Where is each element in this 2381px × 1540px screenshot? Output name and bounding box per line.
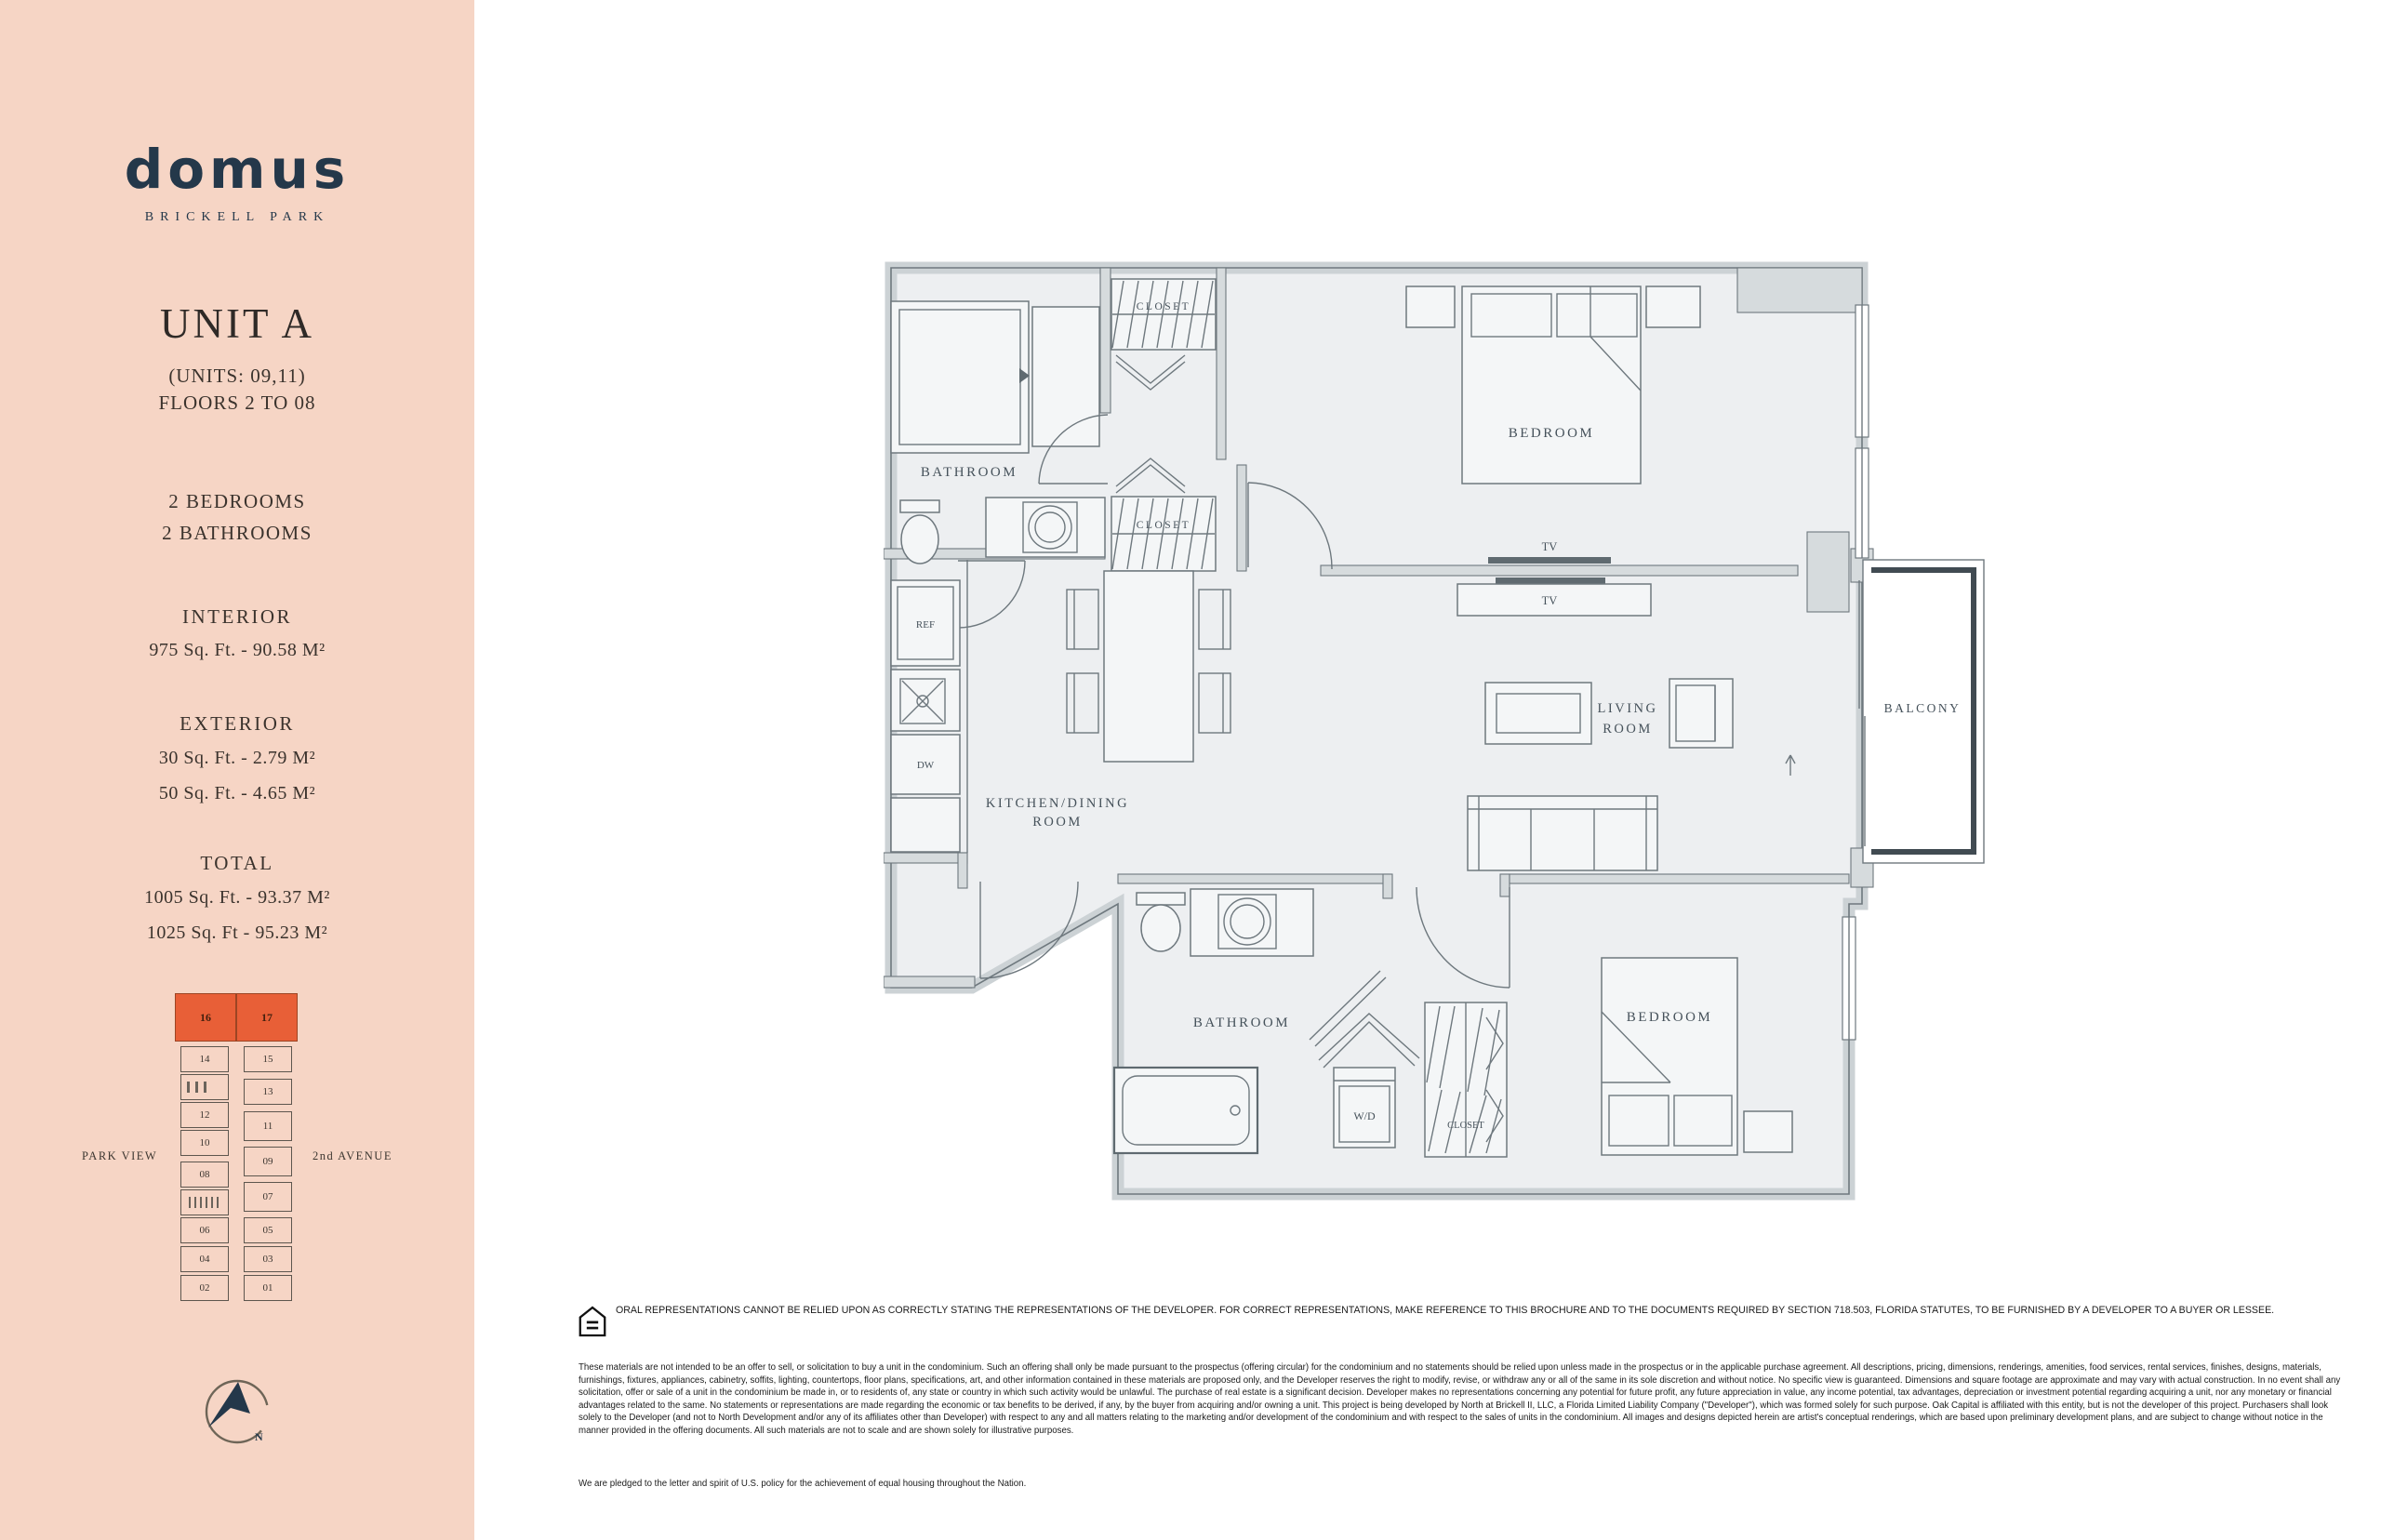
keyplan-unit-13: 13 — [244, 1079, 292, 1105]
keyplan-unit-11: 11 — [244, 1111, 292, 1141]
keyplan-unit-07: 07 — [244, 1182, 292, 1212]
wd-label: W/D — [1353, 1109, 1376, 1122]
armchair — [1669, 679, 1733, 748]
keyplan-unit-04: 04 — [180, 1246, 229, 1272]
total-area-1: 1005 Sq. Ft. - 93.37 M² — [0, 887, 474, 909]
bathroom-top-label: BATHROOM — [921, 465, 1018, 480]
nightstand-1 — [1406, 286, 1455, 327]
unit-title: UNIT A — [0, 299, 474, 348]
kitchen-sink — [891, 670, 960, 731]
keyplan-unit-16-highlighted: 16 — [175, 993, 236, 1042]
tv-bottom-unit — [1496, 577, 1605, 584]
shower — [891, 301, 1030, 453]
closet-bottom-label: CLOSET — [1447, 1121, 1484, 1131]
bedroom-top-label: BEDROOM — [1509, 426, 1595, 441]
keyplan-unit-09: 09 — [244, 1147, 292, 1176]
bathroom-1-sink — [986, 498, 1105, 557]
unit-numbers: (UNITS: 09,11) — [0, 365, 474, 388]
toilet-1 — [900, 500, 939, 564]
stairs-icon — [180, 1189, 229, 1215]
linen-cabinet — [1032, 307, 1099, 446]
disclaimer-headline-block: ORAL REPRESENTATIONS CANNOT BE RELIED UP… — [579, 1304, 2338, 1343]
keyplan-unit-17-highlighted: 17 — [236, 993, 298, 1042]
bed-1 — [1462, 286, 1641, 484]
kitchen-counter — [891, 560, 967, 853]
closet-bottom-unit — [1425, 1002, 1507, 1157]
closet-top-label: CLOSET — [1137, 301, 1190, 312]
sidebar: domus BRICKELL PARK UNIT A (UNITS: 09,11… — [0, 0, 474, 1540]
floorplan: CLOSET CLOSET BATHROOM BEDROOM TV TV REF… — [884, 253, 2065, 1239]
bathrooms-count: 2 BATHROOMS — [0, 522, 474, 545]
living-label-1: LIVING — [1598, 701, 1658, 716]
building-keyplan: 16 17 14 12 10 08 06 04 02 15 13 11 09 0… — [173, 993, 299, 1311]
kitchen-label-2: ROOM — [1032, 815, 1083, 830]
keyplan-unit-03: 03 — [244, 1246, 292, 1272]
compass-icon: N — [195, 1370, 279, 1454]
keyplan-unit-02: 02 — [180, 1275, 229, 1301]
nightstand-3 — [1744, 1111, 1792, 1152]
disclaimer-headline: ORAL REPRESENTATIONS CANNOT BE RELIED UP… — [616, 1305, 2274, 1316]
keyplan-unit-15: 15 — [244, 1046, 292, 1072]
keyplan-unit-10: 10 — [180, 1130, 229, 1156]
kitchen-label-1: KITCHEN/DINING — [986, 796, 1129, 811]
disclaimer-body: These materials are not intended to be a… — [579, 1361, 2353, 1438]
nightstand-2 — [1646, 286, 1700, 327]
exterior-area-1: 30 Sq. Ft. - 2.79 M² — [0, 748, 474, 769]
bedroom-bottom-label: BEDROOM — [1627, 1010, 1713, 1025]
compass-north-label: N — [255, 1430, 263, 1443]
brochure-page: { "sidebar": { "background_color": "#f6d… — [0, 0, 2381, 1540]
ref-label: REF — [916, 619, 935, 631]
bathroom-2-sink — [1190, 889, 1313, 956]
kitchen-cabinet — [891, 798, 960, 852]
interior-heading: INTERIOR — [0, 605, 474, 629]
bathroom-bottom-label: BATHROOM — [1193, 1016, 1290, 1030]
keyplan-unit-01: 01 — [244, 1275, 292, 1301]
keyplan-unit-14: 14 — [180, 1046, 229, 1072]
bed-2 — [1602, 958, 1737, 1155]
elevator-icon — [180, 1074, 229, 1100]
exterior-heading: EXTERIOR — [0, 712, 474, 736]
second-avenue-label: 2nd AVENUE — [313, 1149, 392, 1163]
keyplan-unit-08: 08 — [180, 1162, 229, 1188]
tv-top-unit — [1488, 557, 1611, 564]
brand-logo: domus — [0, 138, 474, 201]
bathtub — [1114, 1068, 1257, 1153]
unit-floors: FLOORS 2 TO 08 — [0, 392, 474, 415]
interior-area: 975 Sq. Ft. - 90.58 M² — [0, 640, 474, 661]
sofa — [1468, 796, 1657, 870]
balcony-label: BALCONY — [1884, 701, 1962, 715]
keyplan-unit-05: 05 — [244, 1217, 292, 1243]
brand-subtitle: BRICKELL PARK — [0, 210, 474, 225]
tv-top-label: TV — [1542, 540, 1558, 553]
living-label-2: ROOM — [1603, 722, 1653, 737]
washer-dryer — [1334, 1068, 1395, 1148]
equal-housing-statement: We are pledged to the letter and spirit … — [579, 1479, 2353, 1489]
keyplan-unit-06: 06 — [180, 1217, 229, 1243]
total-heading: TOTAL — [0, 852, 474, 875]
keyplan-unit-12: 12 — [180, 1102, 229, 1128]
bedrooms-count: 2 BEDROOMS — [0, 490, 474, 513]
closet-mid-label: CLOSET — [1137, 520, 1190, 531]
coffee-table — [1485, 683, 1591, 744]
total-area-2: 1025 Sq. Ft - 95.23 M² — [0, 923, 474, 944]
equal-housing-icon — [579, 1306, 606, 1341]
dw-label: DW — [917, 760, 935, 771]
park-view-label: PARK VIEW — [82, 1149, 157, 1163]
exterior-area-2: 50 Sq. Ft. - 4.65 M² — [0, 783, 474, 804]
tv-bottom-label: TV — [1542, 594, 1558, 607]
